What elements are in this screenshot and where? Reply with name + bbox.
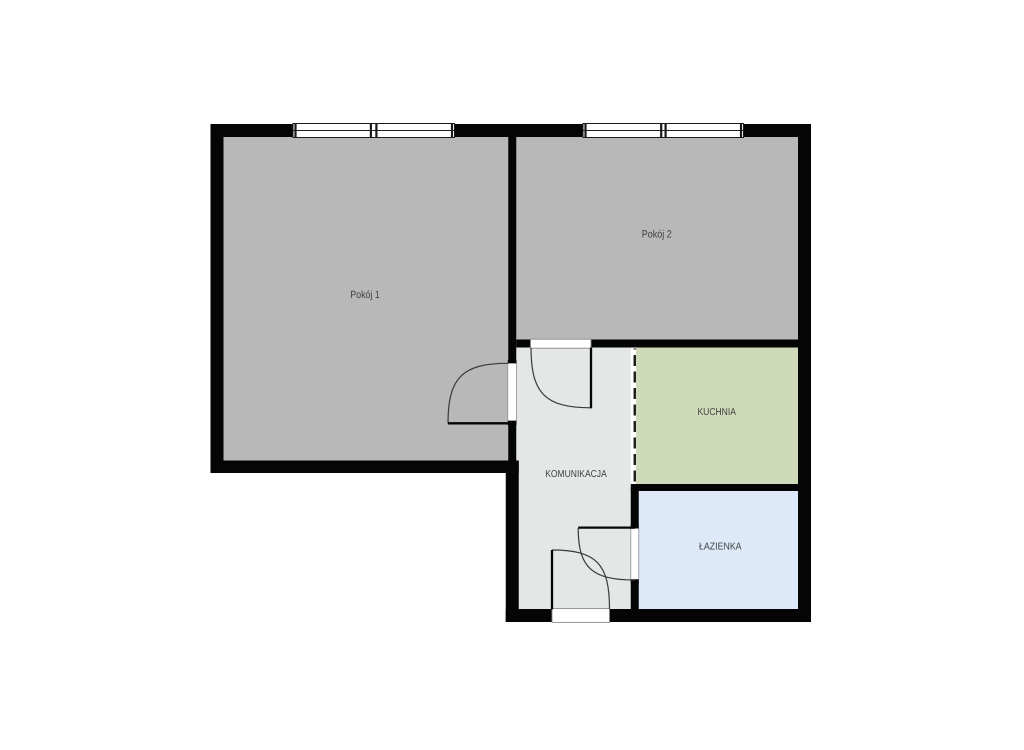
svg-text:KOMUNIKACJA: KOMUNIKACJA <box>545 469 607 480</box>
svg-text:KUCHNIA: KUCHNIA <box>697 407 736 418</box>
svg-text:Pokój 2: Pokój 2 <box>642 228 672 240</box>
svg-text:ŁAZIENKA: ŁAZIENKA <box>699 542 742 553</box>
svg-text:Pokój 1: Pokój 1 <box>350 289 380 301</box>
